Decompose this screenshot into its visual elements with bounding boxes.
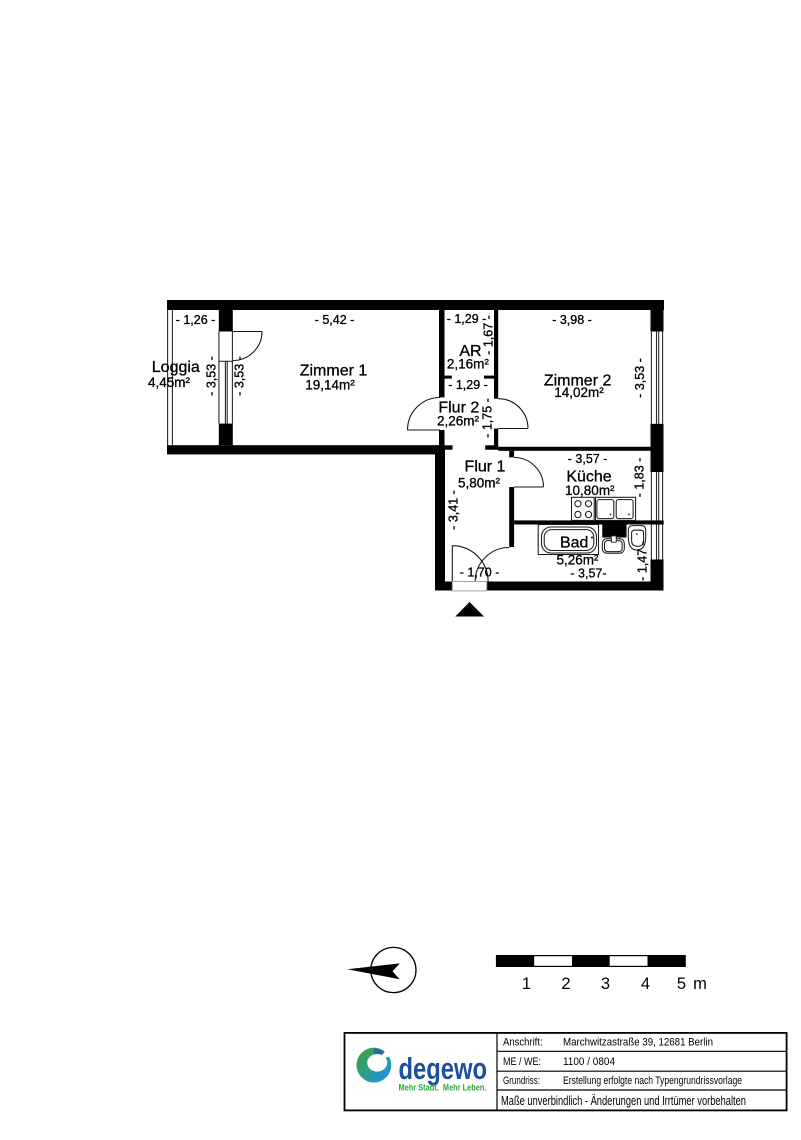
svg-text:14,02m²: 14,02m²: [554, 385, 604, 400]
svg-text:2,26m²: 2,26m²: [437, 414, 480, 429]
svg-text:Marchwitzastraße 39, 12681 Ber: Marchwitzastraße 39, 12681 Berlin: [563, 1036, 713, 1048]
svg-text:- 1,26 -: - 1,26 -: [176, 313, 216, 327]
svg-text:- 5,42 -: - 5,42 -: [315, 313, 355, 327]
svg-text:- 3,57 -: - 3,57 -: [568, 452, 608, 466]
svg-text:3: 3: [601, 975, 610, 993]
svg-text:5,80m²: 5,80m²: [458, 476, 501, 491]
svg-text:- 3,53 -: - 3,53 -: [205, 356, 219, 396]
svg-text:Erstellung erfolgte nach Typen: Erstellung erfolgte nach Typengrundrissv…: [563, 1075, 742, 1087]
svg-text:degewo: degewo: [399, 1053, 488, 1087]
svg-text:4,45m²: 4,45m²: [148, 375, 191, 390]
svg-text:- 1,70 -: - 1,70 -: [460, 566, 500, 580]
svg-text:Bad: Bad: [560, 535, 588, 552]
svg-text:Anschrift:: Anschrift:: [503, 1036, 543, 1048]
svg-text:5,26m²: 5,26m²: [556, 553, 599, 568]
svg-text:2: 2: [561, 975, 570, 993]
svg-text:4: 4: [641, 975, 650, 993]
svg-text:- 3,53 -: - 3,53 -: [233, 356, 247, 396]
svg-text:- 1,83 -: - 1,83 -: [633, 458, 647, 498]
svg-text:Maße unverbindlich - Änderunge: Maße unverbindlich - Änderungen und Irrt…: [501, 1093, 746, 1108]
svg-text:5: 5: [677, 975, 686, 993]
svg-text:Mehr Stadt. Mehr Leben.: Mehr Stadt. Mehr Leben.: [399, 1082, 487, 1093]
svg-text:1100 / 0804: 1100 / 0804: [563, 1056, 615, 1068]
svg-text:- 3,41 -: - 3,41 -: [447, 490, 461, 530]
svg-text:- 3,53 -: - 3,53 -: [633, 358, 647, 398]
svg-text:- 1,29 -: - 1,29 -: [447, 312, 487, 326]
svg-text:- 3,98 -: - 3,98 -: [552, 313, 592, 327]
svg-text:Flur 1: Flur 1: [465, 459, 506, 476]
svg-text:m: m: [693, 975, 707, 993]
svg-text:1: 1: [522, 975, 531, 993]
svg-text:- 3,57-: - 3,57-: [570, 567, 606, 581]
svg-text:- 1,67 -: - 1,67 -: [482, 315, 496, 355]
svg-text:10,80m²: 10,80m²: [565, 483, 615, 498]
svg-text:- 1,75 -: - 1,75 -: [481, 398, 495, 438]
svg-text:ME / WE:: ME / WE:: [503, 1056, 541, 1068]
svg-text:19,14m²: 19,14m²: [305, 378, 355, 393]
svg-text:- 1,29 -: - 1,29 -: [448, 378, 488, 392]
svg-text:Loggia: Loggia: [152, 359, 200, 376]
svg-text:2,16m²: 2,16m²: [447, 356, 490, 371]
svg-text:Grundriss:: Grundriss:: [503, 1075, 540, 1087]
svg-text:- 1,47 -: - 1,47 -: [636, 541, 650, 581]
